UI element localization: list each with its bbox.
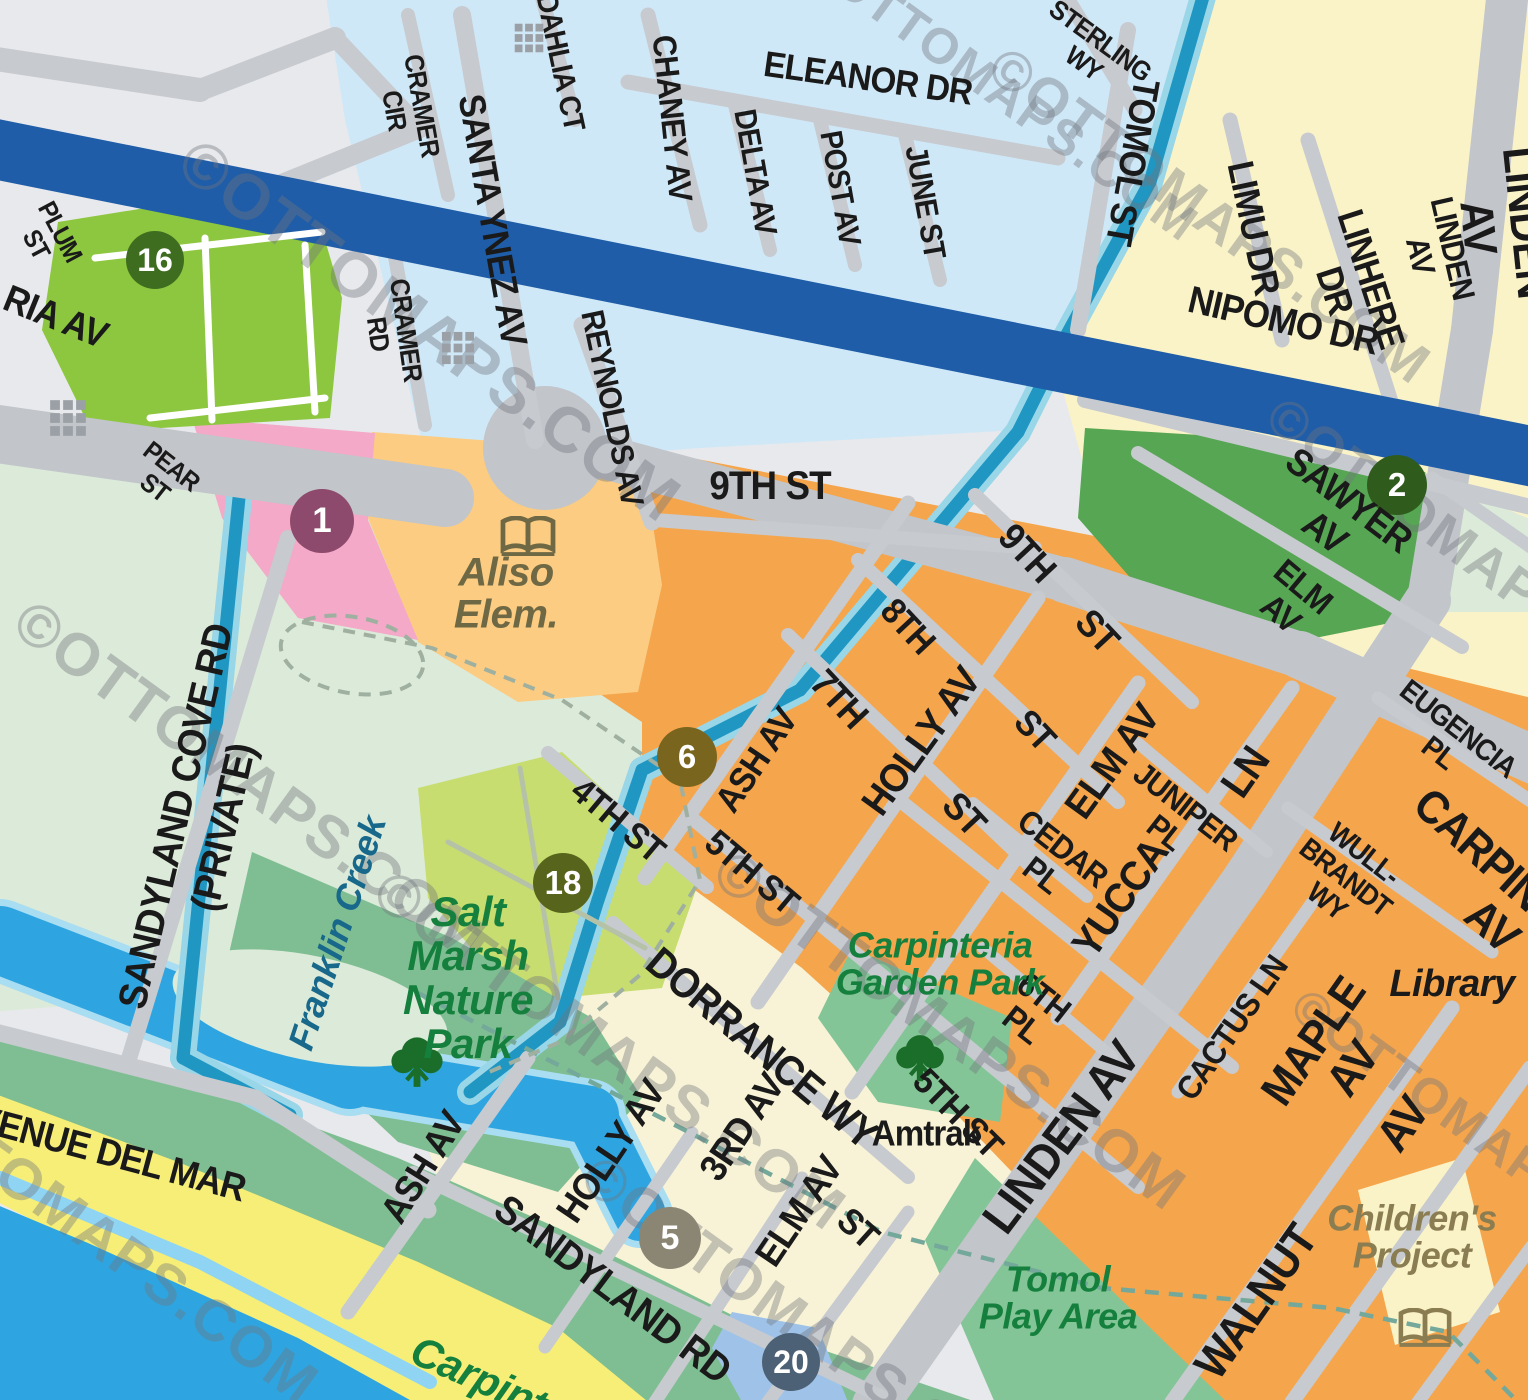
label-carpinteria-garden-park: Carpinteria Garden Park bbox=[836, 927, 1045, 1002]
label-9th-st: 9TH ST bbox=[709, 466, 830, 508]
map-marker-18: 18 bbox=[533, 853, 593, 913]
map-marker-1: 1 bbox=[290, 489, 354, 553]
map-marker-16: 16 bbox=[126, 231, 184, 289]
road-topleft-1 bbox=[0, 55, 200, 90]
label-salt-marsh-nature-park: Salt Marsh Nature Park bbox=[403, 890, 533, 1066]
map-marker-5: 5 bbox=[639, 1207, 701, 1269]
road-topleft-2 bbox=[200, 38, 335, 90]
city-map-canvas[interactable]: ©OTTOMAPS.COM©OTTOMAPS.COM©OTTOMAPS.COM©… bbox=[0, 0, 1528, 1400]
label-tomol-play-area: Tomol Play Area bbox=[979, 1261, 1137, 1336]
label-children-s-project: Children's Project bbox=[1327, 1200, 1497, 1275]
label-aliso-elem: Aliso Elem. bbox=[454, 552, 558, 635]
label-library: Library bbox=[1389, 965, 1514, 1005]
map-marker-20: 20 bbox=[762, 1333, 820, 1391]
label-amtrak: Amtrak bbox=[872, 1114, 981, 1151]
map-marker-6: 6 bbox=[657, 727, 717, 787]
